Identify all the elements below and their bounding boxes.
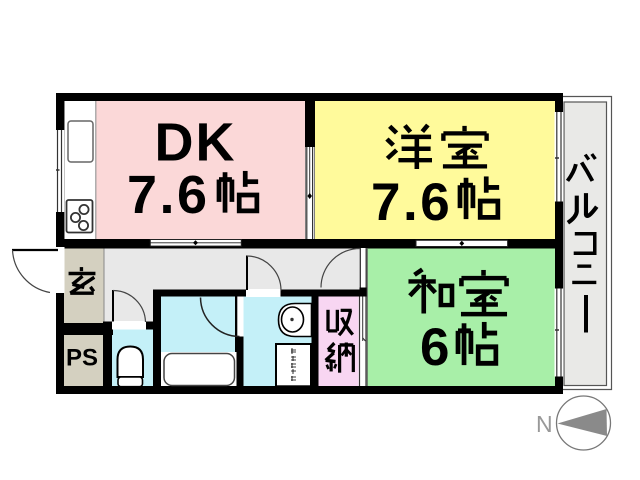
svg-text:DK: DK bbox=[155, 113, 237, 173]
svg-text:7.6: 7.6 bbox=[127, 165, 210, 225]
svg-text:N: N bbox=[536, 411, 553, 437]
svg-text:6: 6 bbox=[420, 318, 449, 377]
svg-text:PS: PS bbox=[66, 345, 98, 372]
svg-text:7.6: 7.6 bbox=[371, 173, 452, 232]
